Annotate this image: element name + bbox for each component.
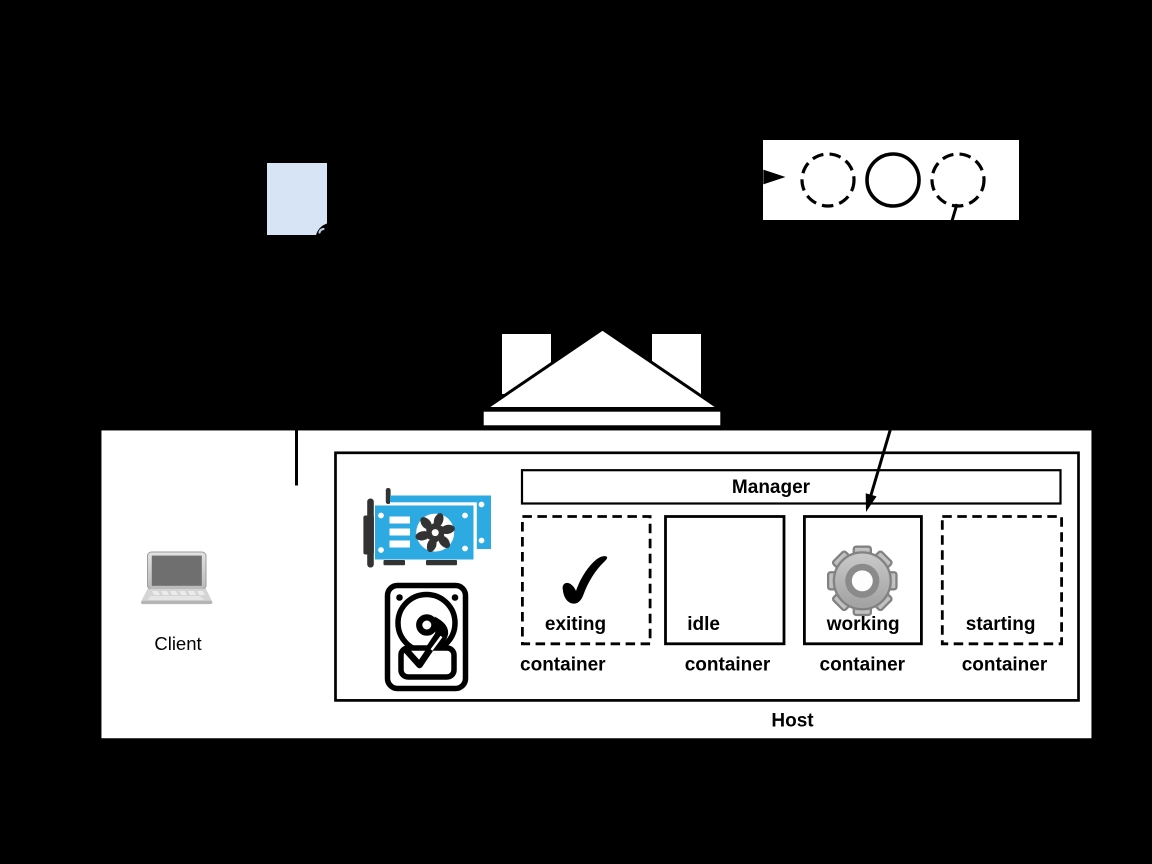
svg-text:Client: Client xyxy=(154,633,201,654)
svg-text:container: container xyxy=(685,655,771,676)
svg-text:container: container xyxy=(820,655,906,676)
svg-text:working: working xyxy=(826,614,900,635)
svg-text:container: container xyxy=(962,655,1048,676)
svg-text:idle: idle xyxy=(687,614,720,635)
svg-text:Manager: Manager xyxy=(732,477,811,498)
svg-text:starting: starting xyxy=(966,614,1036,635)
svg-text:Host: Host xyxy=(771,711,814,732)
svg-text:exiting: exiting xyxy=(545,614,606,635)
svg-text:container: container xyxy=(520,655,606,676)
